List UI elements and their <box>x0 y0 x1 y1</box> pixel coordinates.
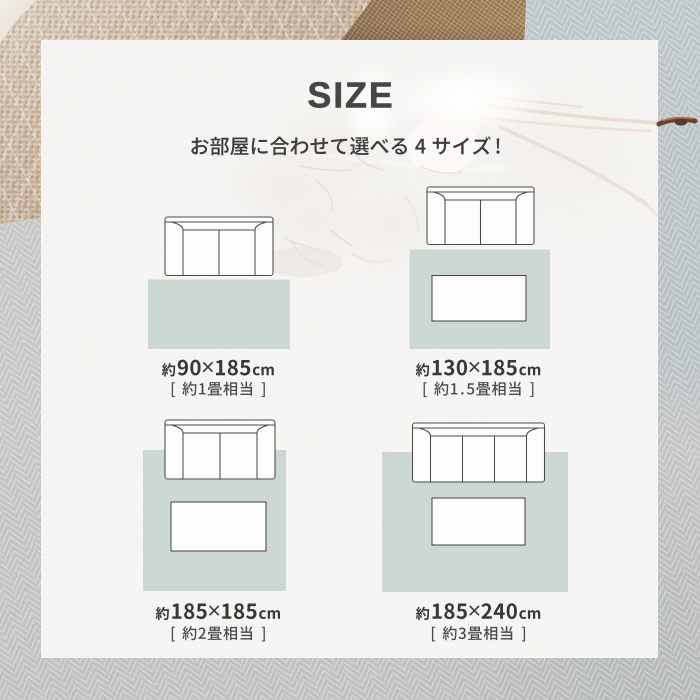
svg-text:SIZE: SIZE <box>307 75 394 116</box>
